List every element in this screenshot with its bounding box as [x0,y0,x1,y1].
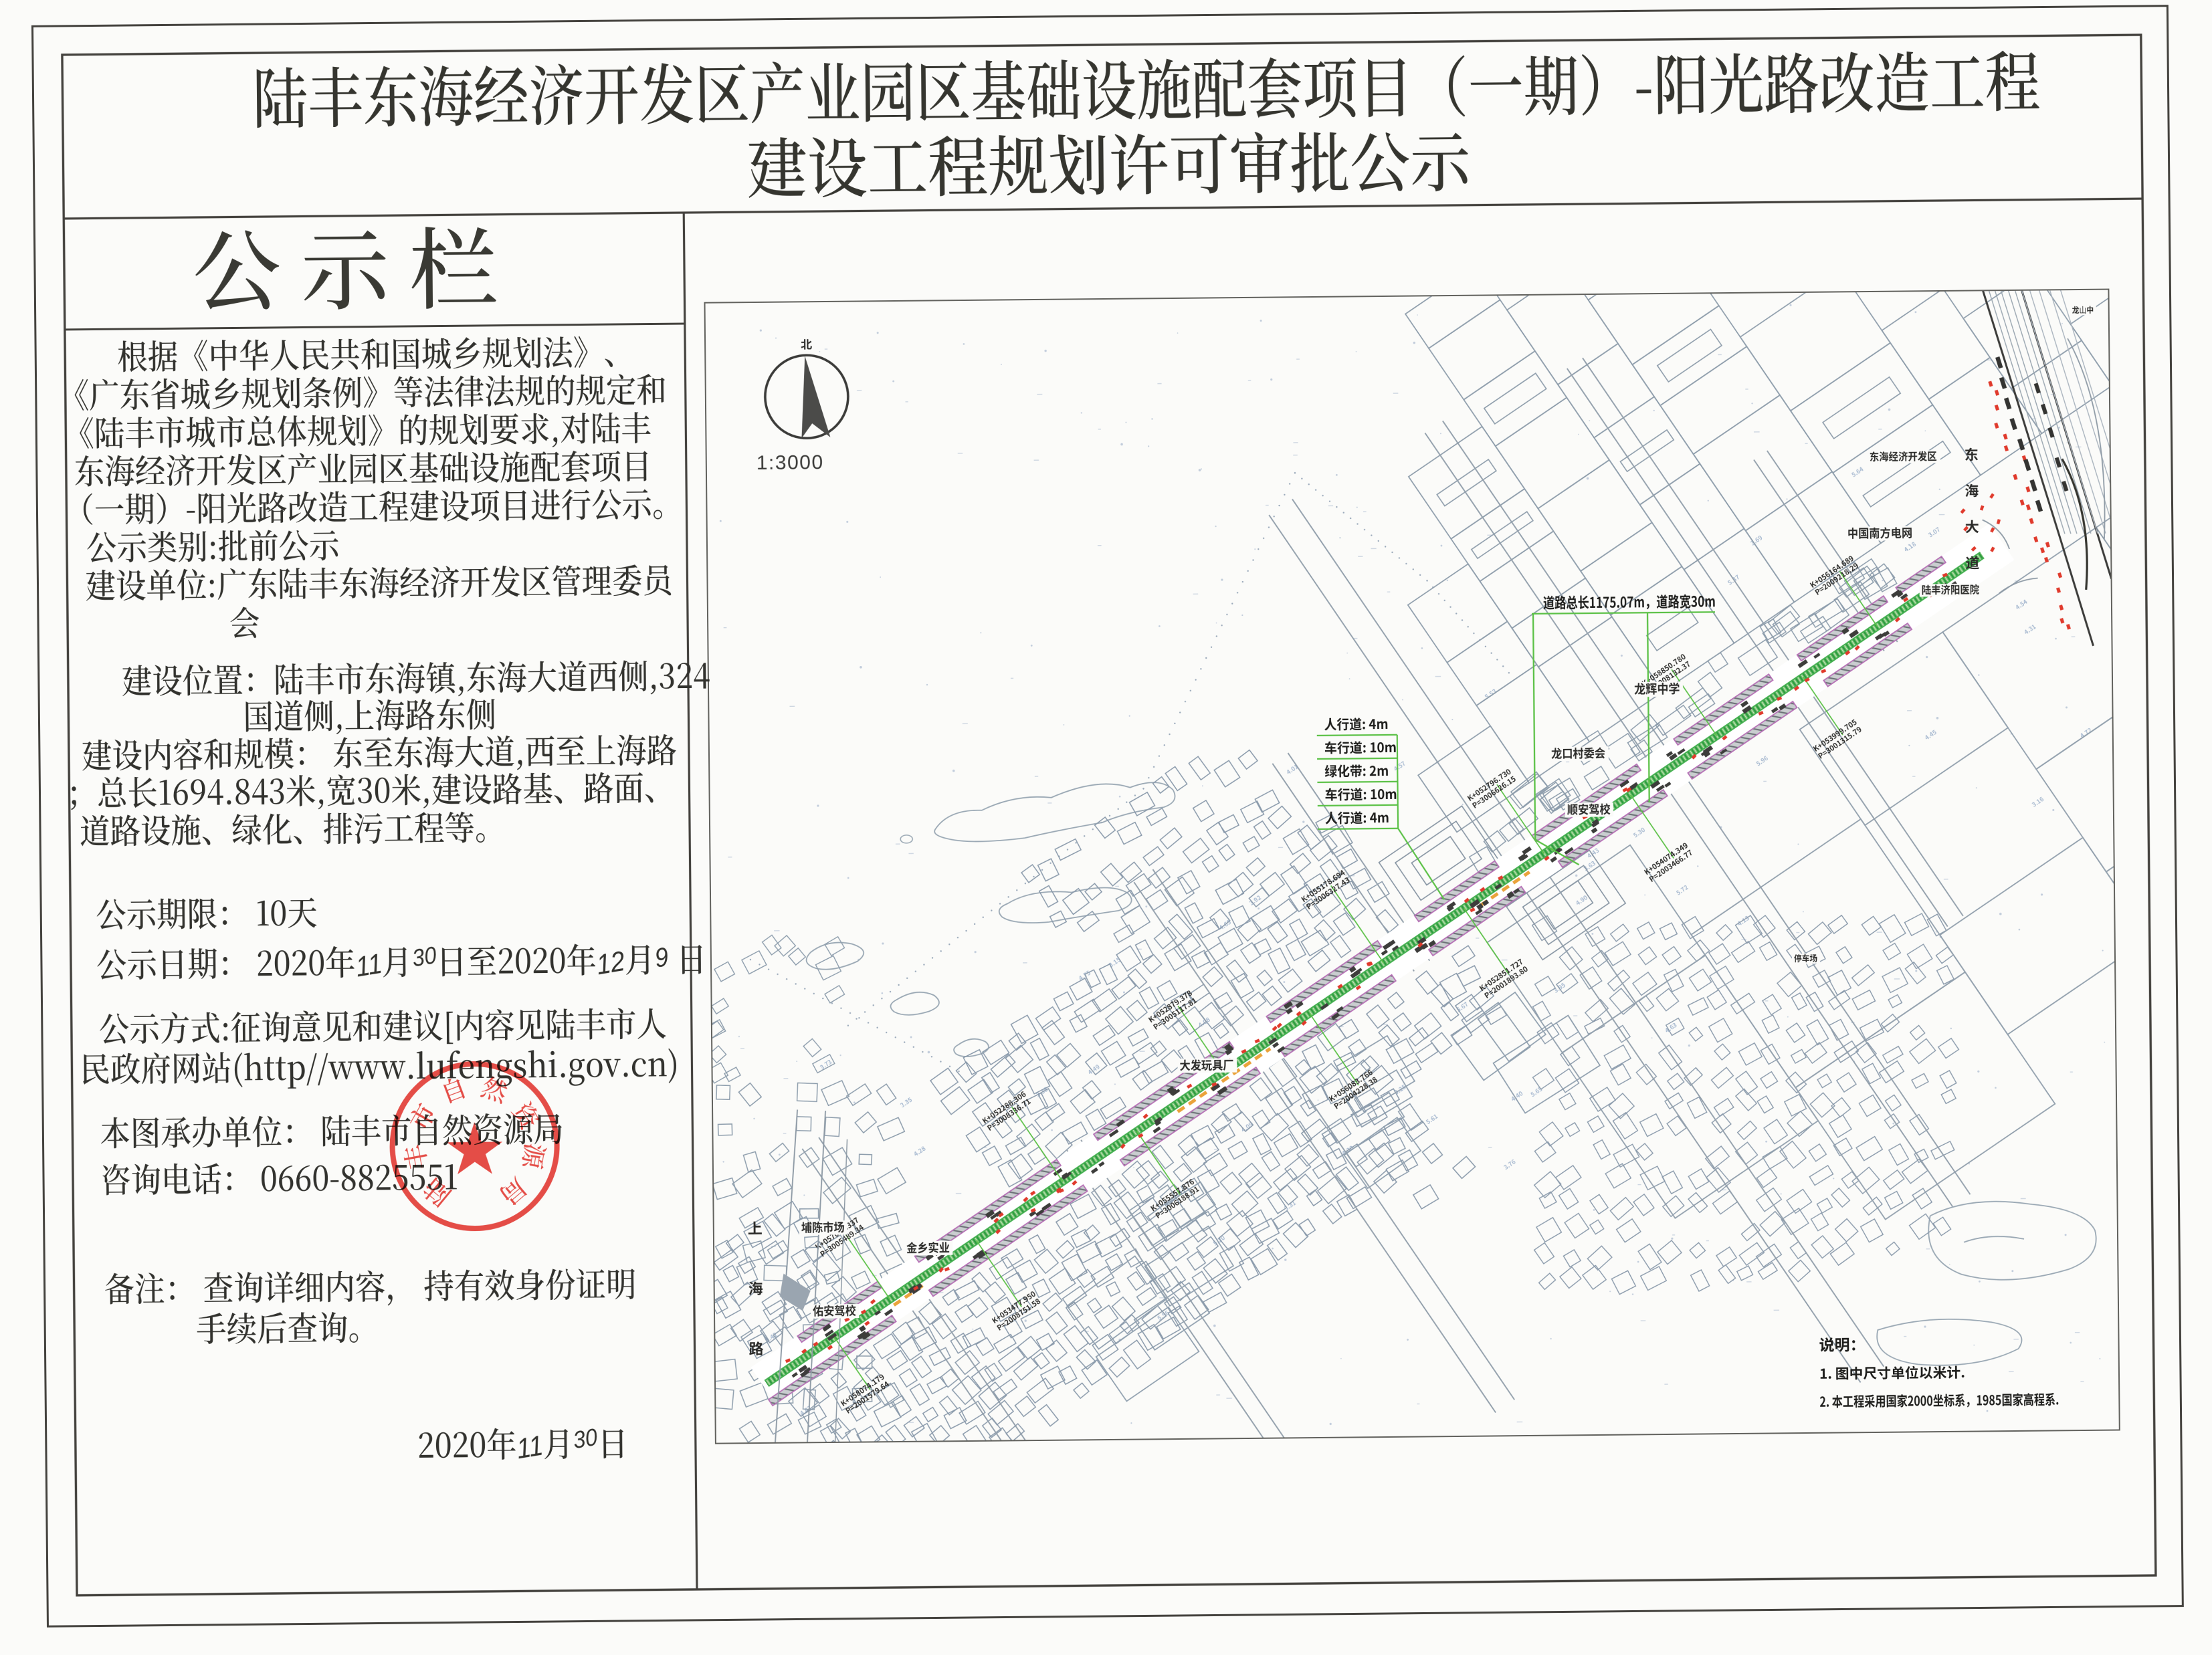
svg-text:源: 源 [515,1141,555,1172]
svg-text:然: 然 [477,1067,513,1110]
svg-text:丰: 丰 [394,1141,435,1173]
svg-text:自: 自 [435,1067,472,1110]
